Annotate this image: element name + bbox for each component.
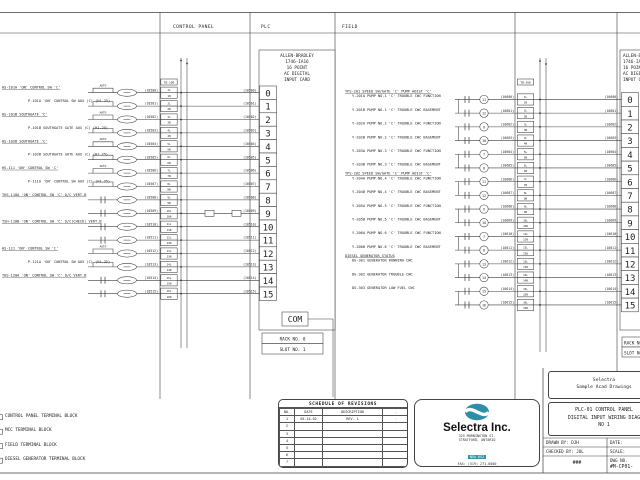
junction-dot [539,181,541,183]
terminal-id: 13L [167,249,172,253]
wire-number: (10503) [145,129,159,133]
wire-number: (10602) [605,122,619,126]
plc-point-number: 7 [627,192,632,202]
wire-number: (10612) [605,259,619,263]
terminal-id: 4L [167,128,171,132]
wire-number: (10512) [145,249,159,253]
terminal-circle-number: 8 [483,249,485,253]
revisions-cell [383,423,409,430]
terminal-id: 7L [167,169,171,173]
plc-point-number: 15 [263,290,274,300]
junction-dot [539,153,541,155]
wire-number: (10500) [243,88,257,92]
wire-number: (10509) [243,209,257,213]
selectra-logo-icon [464,403,490,421]
terminal-id: 3L [524,122,528,126]
field-signal-label: Y-204A PUMP NO.4 'C' TROUBLE CWC FUNCTIO… [352,176,441,180]
client-project: Sample Acad Drawings [549,385,640,392]
revisions-cell: 1 [280,416,295,423]
signal-label: HS-102B SOUTHGATE 'C' [2,139,47,143]
plc-point-number: 3 [627,137,632,147]
plc-card-title: AC DIGITAL [284,71,310,77]
wire-number: (10606) [501,177,515,181]
client-box: Selectra Sample Acad Drawings [548,371,640,399]
wire-number: (10610) [501,232,515,236]
signal-label: HS-101A 'ON' CONTROL SW 'C' [2,86,60,90]
wire-number: (10514) [145,276,159,280]
plc-point-number: 8 [265,197,270,207]
legend-terminal-symbol [0,415,3,420]
terminal-id: 14N [523,279,528,283]
junction-dot [180,279,182,281]
revisions-cell [295,430,323,437]
terminal-id: 9N [167,201,171,205]
plc-card-title: 16 POINT [623,65,640,71]
plc-point-number: 13 [625,274,636,284]
plc-point-number: 13 [263,264,274,274]
terminal-id: 5N [524,155,528,159]
terminal-id: 9L [167,195,171,199]
signal-label: P-101B SOUTHGATE GATE AUX (C) (H1.25) [28,126,108,130]
terminal-id: 16L [167,289,172,293]
terminal-id: 6L [167,155,171,159]
company-name: Selectra Inc. [415,422,539,434]
terminal-id: 8L [167,182,171,186]
plc-point-number: 9 [627,219,632,229]
junction-dot [186,63,188,65]
plc-point-number: 4 [627,151,632,161]
plc-point-number: 7 [265,183,270,193]
wire-number: (10514) [243,276,257,280]
com-label: COM [288,315,303,324]
selector-switch-symbol [93,249,113,254]
wire-number: (10513) [145,263,159,267]
field-signal-label: DG-301 GENERATOR RUNNING CWC [352,259,413,263]
plc-point-number: 2 [627,124,632,134]
plc-point-number: 4 [265,143,270,153]
legend-terminal-symbol [0,444,3,449]
terminal-id: 11L [523,232,528,236]
plc-point-number: 0 [265,89,270,99]
wire-number: (10601) [605,109,619,113]
revisions-cell: REV. 1 [323,416,383,423]
terminal-id: 10L [523,218,528,222]
terminal-id: 3L [167,115,171,119]
selector-switch-symbol [93,142,113,147]
terminal-id: 7N [524,183,528,187]
junction-dot [539,249,541,251]
terminal-circle-number: 11 [482,98,486,102]
terminal-id: 2N [524,114,528,118]
wire-number: (10605) [605,164,619,168]
revisions-cell: 2 [280,423,295,430]
selector-switch-symbol [93,169,113,174]
drawing-title-line: DIGITAL INPUT WIRING DIAG [549,415,640,423]
revisions-cell: - [383,416,409,423]
terminal-id: 7N [167,174,171,178]
terminal-id: 1N [524,101,528,105]
drawing-sheet: ALLEN-BRADLEY1746-IA1616 POINTAC DIGITAL… [0,0,640,480]
signal-label: P-111A 'ON' CONTROL SW AUX (C) (H1.25) [28,180,110,184]
plc-card-title: ALLEN-BRADLEY [623,53,640,59]
tb-label: TB-300 [520,81,531,85]
terminal-id: 8L [524,191,528,195]
scale-label: SCALE: [610,449,625,454]
legend-note-field: FIELD TERMINAL BLOCK [5,444,57,448]
junction-dot [180,60,182,62]
revisions-cell: 5 [280,444,295,451]
terminal-id: 4N [524,142,528,146]
terminal-id: 15L [167,276,172,280]
field-signal-label: DG-302 GENERATOR TROUBLE CWC [352,272,413,276]
junction-dot [180,226,182,228]
wire-number: (10608) [605,205,619,209]
wire-number: (10615) [605,301,619,305]
signal-label: HS-101B SOUTHGATE 'C' [2,113,47,117]
wire-number: (10502) [145,115,159,119]
terminal-id: 2L [524,109,528,113]
drawing-title-line: NO 1 [549,422,640,430]
plc-point-number: 14 [263,277,274,287]
plc-point-number: 10 [263,223,274,233]
wire-number: (10603) [501,136,515,140]
terminal-id: 6L [524,163,528,167]
plc-point-number: 10 [625,233,636,243]
revisions-cell [323,452,383,459]
wire-number: (10501) [145,102,159,106]
terminal-id: 9N [524,210,528,214]
revisions-cell [383,444,409,451]
drawing-title-line: PLC-01 CONTROL PANEL [549,407,640,415]
junction-dot [180,239,182,241]
terminal-id: 14L [167,262,172,266]
terminal-id: 16N [523,306,528,310]
junction-dot [539,167,541,169]
terminal-id: 11L [167,222,172,226]
terminal-id: 1L [167,88,171,92]
junction-dot [539,290,541,292]
terminal-circle-number: 13 [482,262,486,266]
plc-point-number: 12 [263,250,274,260]
wire-number: (10502) [243,115,257,119]
field-device-heading: YPS-201 SPEED SW/GATE 'C' PUMP HOIST 'C' [345,89,432,93]
plc-card-title: AC DIGITAL [623,71,640,77]
plc-point-number: 1 [627,110,632,120]
terminal-id: 6N [524,169,528,173]
junction-dot [539,140,541,142]
junction-dot [539,126,541,128]
field-signal-label: Y-203A PUMP NO.3 'C' TROUBLE CWC FUNCTIO… [352,149,441,153]
terminal-id: 5N [167,147,171,151]
header-field: FIELD [342,26,358,31]
junction-dot [539,208,541,210]
wire-number: (10614) [605,287,619,291]
wire-number: (10506) [145,169,159,173]
revisions-cell [323,430,383,437]
terminal-id: 4N [167,134,171,138]
terminal-circle-number: 16 [482,303,486,307]
wire-number: (10606) [605,177,619,181]
junction-dot [180,253,182,255]
terminal-circle-number: 8 [483,166,485,170]
wire-number: (10510) [243,222,257,226]
plc-point-number: 0 [627,96,632,106]
terminal-id: 5L [167,142,171,146]
revisions-cell [323,459,383,466]
wire-number: (10509) [145,209,159,213]
signal-label: TSH-110B 'ON' CONTROL SW 'C' O/C(CHECK) … [2,220,102,224]
legend-terminal-symbol [0,429,3,434]
wire-number: (10609) [501,218,515,222]
field-signal-label: Y-204B PUMP NO.4 'C' TROUBLE CWC BASEMEN… [352,190,442,194]
terminal-circle-number: 15 [482,290,486,294]
plc-point-number: 11 [625,247,636,257]
junction-dot [180,105,182,107]
terminal-id: 13N [167,255,172,259]
terminal-id: 6N [167,161,171,165]
wire-number: (10615) [501,301,515,305]
wire-number: (10511) [145,236,159,240]
wire-number: (10602) [501,122,515,126]
terminal-id: 15N [167,281,172,285]
terminal-id: 8N [524,196,528,200]
field-signal-label: Y-202B PUMP NO.2 'C' TROUBLE CWC BASEMEN… [352,135,442,139]
field-device-heading: DIESEL GENERATOR STATUS [345,254,395,258]
plc-point-number: 6 [627,178,632,188]
wire-number: (10513) [243,263,257,267]
field-signal-label: Y-205A PUMP NO.5 'C' TROUBLE CWC FUNCTIO… [352,204,441,208]
terminal-circle-number: 9 [483,125,485,129]
terminal-circle-number: 12 [482,112,486,116]
junction-dot [539,277,541,279]
revisions-cell: 05.14.02 [295,416,323,423]
terminal-circle-number: 7 [483,235,485,239]
terminal-circle-number: 10 [482,221,486,225]
revisions-cell [295,452,323,459]
revisions-cell: 4 [280,437,295,444]
legend-note-diesel-generator: DIESEL GENERATOR TERMINAL BLOCK [5,458,85,462]
junction-dot [539,304,541,306]
revisions-cell: 7 [280,459,295,466]
drawing-title-box: PLC-01 CONTROL PANEL DIGITAL INPUT WIRIN… [548,402,640,436]
revisions-header-cell: - [383,409,409,416]
field-signal-label: DG-303 GENERATOR LOW FUEL CWC [352,286,415,290]
signal-label: HS-111 'ON' CONTROL SW 'C' [2,166,58,170]
wire-number: (10511) [243,236,257,240]
terminal-id: 10N [523,224,528,228]
company-phone: PHONE: (519) 271-0500 [415,466,539,467]
terminal-id: 12N [167,241,172,245]
legend-terminal-symbol [0,458,3,463]
junction-dot [539,222,541,224]
plc-card-title: 1746-IA16 [285,59,309,65]
revisions-cell [383,430,409,437]
wire-number: (10507) [145,182,159,186]
sheet-number: ### [560,461,594,466]
plc-point-number: 14 [625,288,636,298]
signal-label: P-102B SOUTHGATE GATE AUX (C) (H1.25) [28,153,108,157]
terminal-circle-number: 10 [482,139,486,143]
plc-point-number: 5 [627,165,632,175]
wire-number: (10611) [501,246,515,250]
legend-note-control-panel: CONTROL PANEL TERMINAL BLOCK [5,415,77,419]
wire-number: (10503) [243,129,257,133]
auto-label: AUTO [100,137,107,141]
revisions-cell [383,437,409,444]
wire-number: (10505) [145,155,159,159]
terminal-circle-number: 7 [483,153,485,157]
wire-number: (10515) [243,289,257,293]
terminal-id: 13L [523,259,528,263]
field-signal-label: Y-201A PUMP NO.1 'C' TROUBLE CWC FUNCTIO… [352,94,441,98]
wire-number: (10508) [145,196,159,200]
revisions-cell: 6 [280,452,295,459]
drawn-by: DRAWN BY: DJH [546,440,579,445]
selector-switch-symbol [93,88,113,93]
revisions-cell [295,423,323,430]
auto-label: AUTO [100,110,107,114]
legend-note-mcc: MCC TERMINAL BLOCK [5,429,52,433]
terminal-id: 11N [523,238,528,242]
revisions-cell [323,423,383,430]
rack-label: RACK NO. 0 [280,337,306,343]
auto-label: AUTO [100,84,107,88]
revisions-header-cell: DATE [295,409,323,416]
wire-number: (10601) [501,109,515,113]
note-box [232,210,241,216]
plc-point-number: 15 [625,302,636,312]
junction-dot [180,293,182,295]
terminal-id: 15N [523,292,528,296]
company-postal-code: N5A 6S2 [468,455,486,459]
header-control-panel: CONTROL PANEL [173,26,214,31]
wire-number: (10512) [243,249,257,253]
plc-card-title: INPUT CARD [623,77,640,83]
header-plc: PLC [261,26,271,31]
company-block: Selectra Inc. 325 MORNINGTON ST. STRATFO… [414,399,540,467]
revisions-header-cell: NO. [280,409,295,416]
terminal-id: 10N [167,214,172,218]
terminal-id: 5L [524,150,528,154]
field-signal-label: Y-206B PUMP NO.6 'C' TROUBLE CWC BASEMEN… [352,245,442,249]
junction-dot [539,194,541,196]
wire-number: (10504) [243,142,257,146]
junction-dot [180,212,182,214]
revisions-cell: 3 [280,430,295,437]
junction-dot [545,63,547,65]
junction-dot [180,172,182,174]
revisions-header-cell: DESCRIPTION [323,409,383,416]
wire-number: (10600) [605,95,619,99]
terminal-id: 7L [524,177,528,181]
terminal-id: 14L [523,273,528,277]
junction-dot [539,236,541,238]
terminal-id: 3N [524,128,528,132]
wire-number: (10614) [501,287,515,291]
terminal-circle-number: 9 [483,207,485,211]
wire-number: (10613) [501,273,515,277]
plc-card-title: INPUT CARD [284,77,310,83]
wire-number: (10500) [145,88,159,92]
wire-number: (10600) [501,95,515,99]
junction-dot [180,145,182,147]
wire-number: (10504) [145,142,159,146]
terminal-id: 14N [167,268,172,272]
junction-dot [180,266,182,268]
signal-label: P-121A 'ON' CONTROL SW AUX (C) (H1.25) [28,260,110,264]
plc-point-number: 11 [263,237,274,247]
wire-number: (10610) [605,232,619,236]
plc-point-number: 2 [265,116,270,126]
plc-point-number: 8 [627,206,632,216]
revisions-cell [323,437,383,444]
signal-label: P-101A 'ON' CONTROL SW AUX (C) (H1.25) [28,99,110,103]
terminal-circle-number: 11 [482,180,486,184]
signal-label: HS-121 'ON' CONTROL SW 'C' [2,247,58,251]
note-box [205,210,214,216]
wire-number: (10607) [501,191,515,195]
slot-label: SLOT NO. 1 [280,347,306,353]
wire-number: (10604) [605,150,619,154]
plc-point-number: 9 [265,210,270,220]
junction-dot [180,199,182,201]
junction-dot [180,159,182,161]
plc-point-number: 6 [265,170,270,180]
dwg-no-label: DWG NO. [610,458,628,463]
date-label: DATE: [610,440,623,445]
terminal-circle-number: 12 [482,194,486,198]
wire-number: (10608) [501,205,515,209]
junction-dot [539,263,541,265]
wire-number: (10508) [243,196,257,200]
wire-number: (10605) [501,164,515,168]
wire-number: (10612) [501,259,515,263]
wire-number: (10611) [605,246,619,250]
revisions-cell [323,444,383,451]
terminal-id: 8N [167,188,171,192]
terminal-id: 11N [167,228,172,232]
revisions-block: SCHEDULE OF REVISIONS NO.DATEDESCRIPTION… [278,399,408,468]
wire-number: (10613) [605,273,619,277]
terminal-id: 15L [523,287,528,291]
terminal-id: 3N [167,121,171,125]
junction-dot [539,99,541,101]
field-signal-label: Y-201B PUMP NO.1 'C' TROUBLE CWC BASEMEN… [352,108,442,112]
terminal-id: 12N [523,251,528,255]
terminal-id: 9L [524,205,528,209]
checked-by: CHECKED BY: JOL [546,449,584,454]
plc-card-title: 1746-IA16 [623,59,640,65]
revisions-cell [295,437,323,444]
wire-number: (10604) [501,150,515,154]
plc-point-number: 1 [265,103,270,113]
selector-switch-symbol [93,115,113,120]
terminal-id: 13N [523,265,528,269]
slot-label: SLOT NO. 2 [624,350,640,356]
field-signal-label: Y-205B PUMP NO.5 'C' TROUBLE CWC BASEMEN… [352,217,442,221]
field-signal-label: Y-203B PUMP NO.3 'C' TROUBLE CWC BASEMEN… [352,163,442,167]
signal-label: THS-120A 'ON' CONTROL SW 'C' O/C VERT.B [2,273,86,277]
auto-label: AUTO [100,244,107,248]
junction-dot [180,92,182,94]
revisions-cell [295,444,323,451]
field-signal-label: Y-206A PUMP NO.6 'C' TROUBLE CWC FUNCTIO… [352,231,441,235]
terminal-id: 12L [523,246,528,250]
junction-dot [180,119,182,121]
terminal-id: 1L [524,95,528,99]
revisions-cell [295,459,323,466]
revisions-cell [383,459,409,466]
